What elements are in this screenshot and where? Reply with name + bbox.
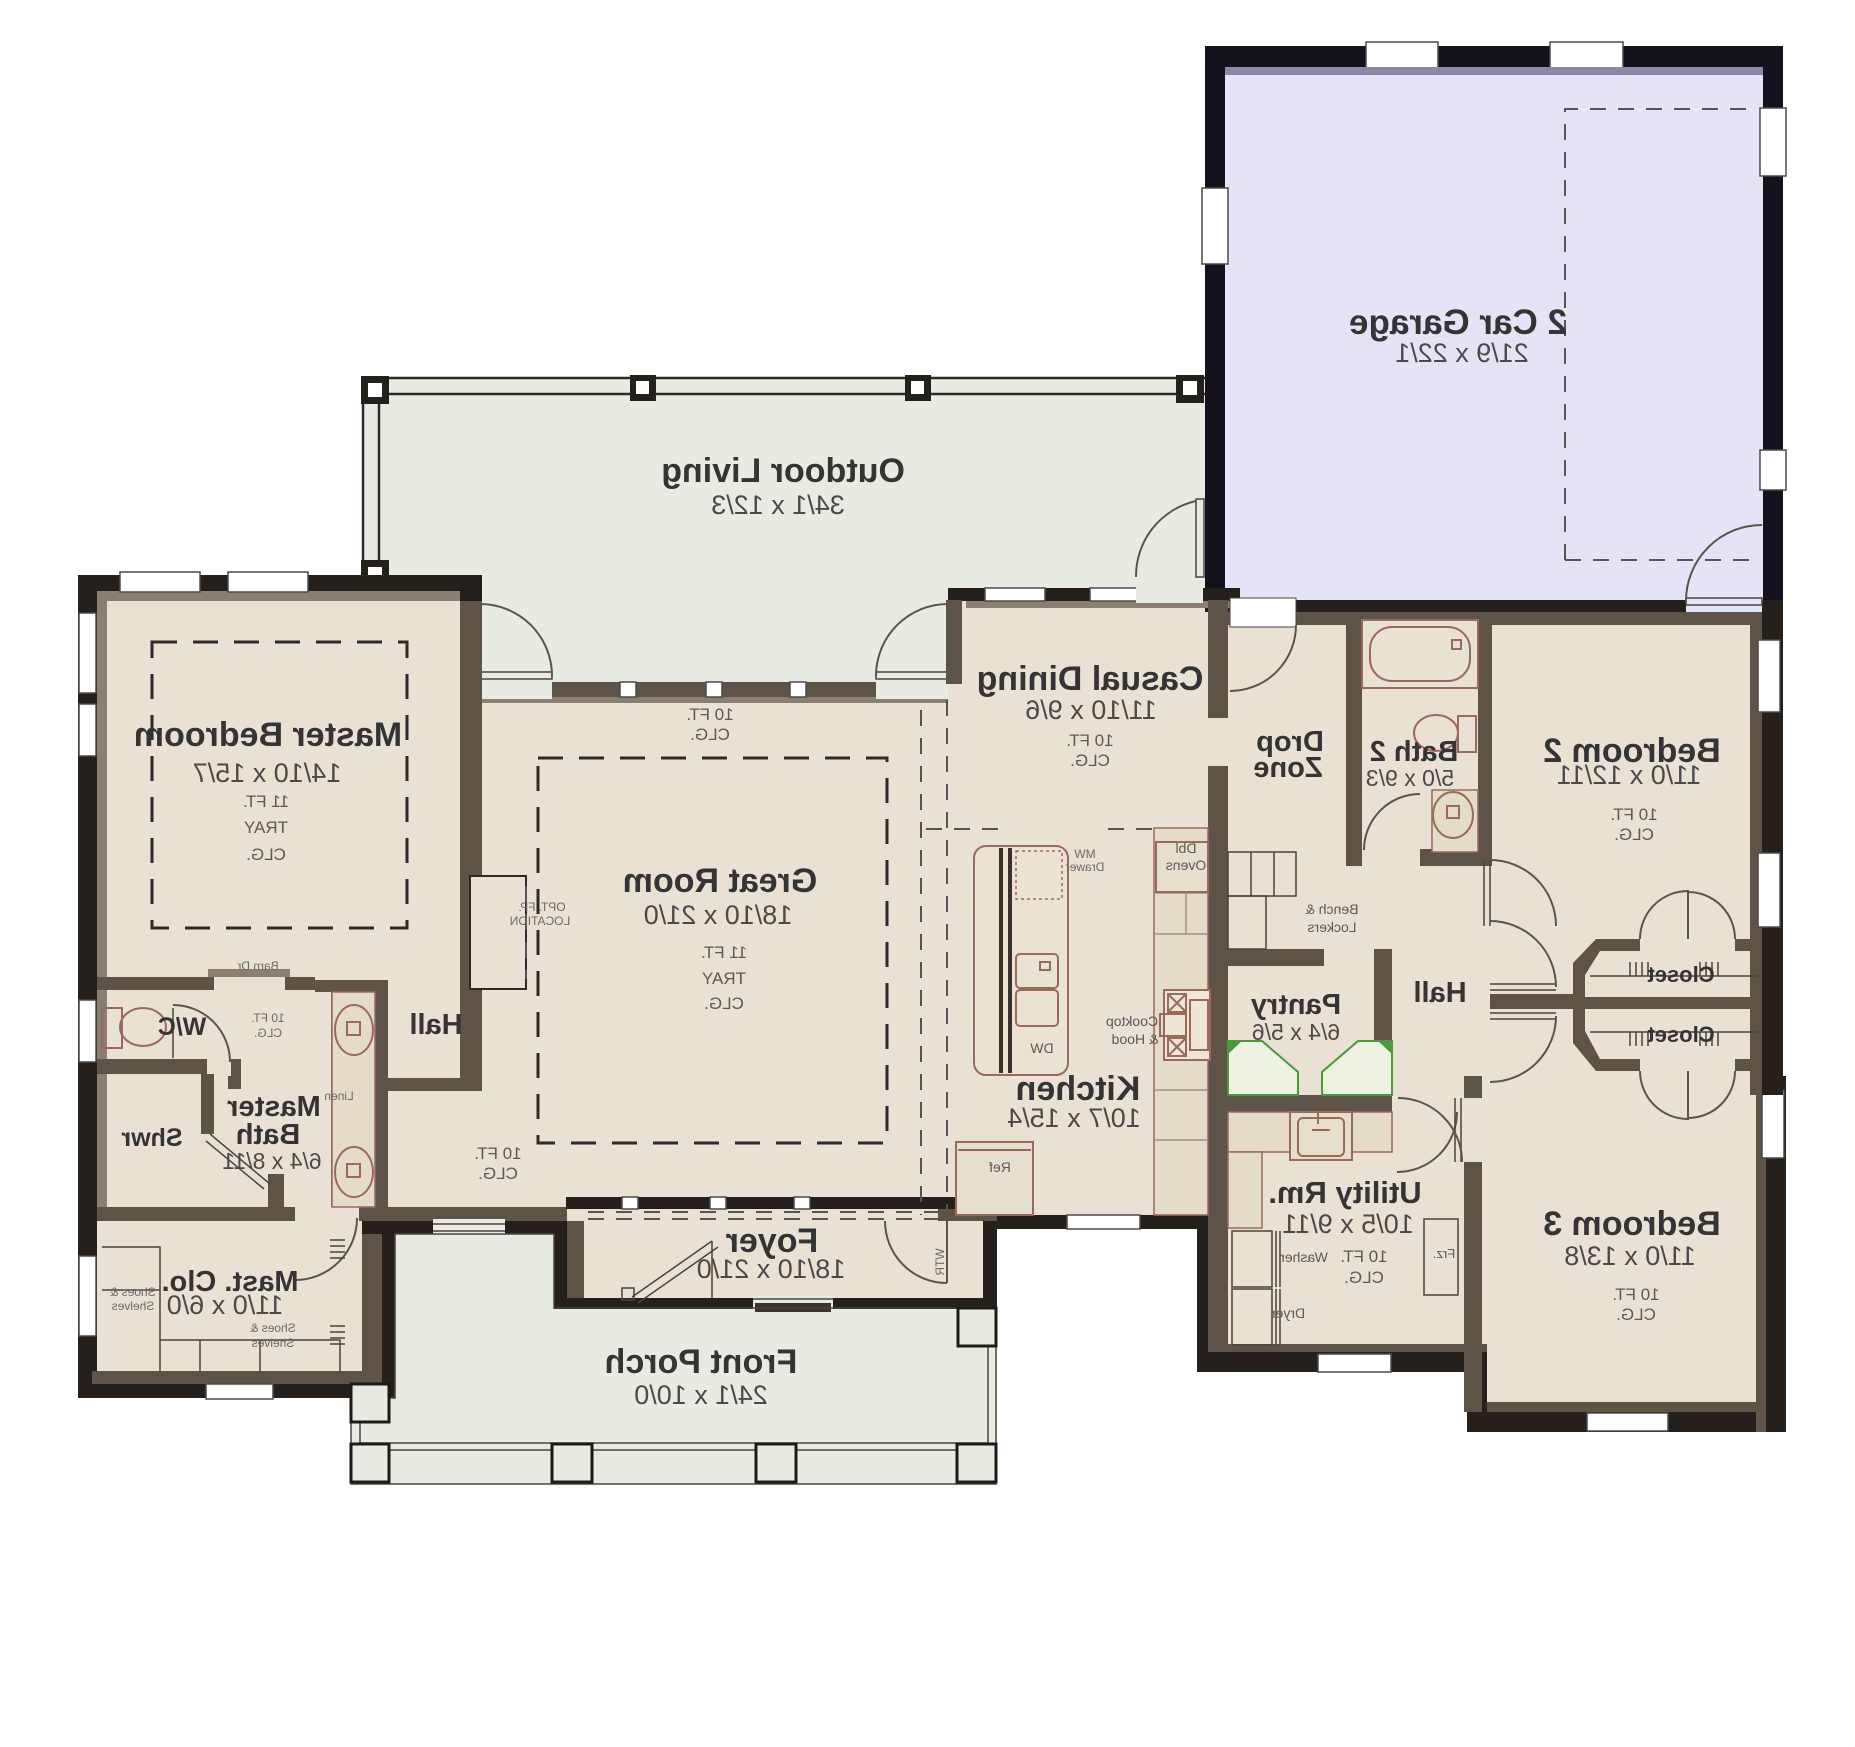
svg-text:11/0 x 13/8: 11/0 x 13/8: [1564, 1241, 1696, 1271]
svg-text:10/5 x 9/11: 10/5 x 9/11: [1282, 1209, 1414, 1239]
svg-text:Shelves: Shelves: [112, 1299, 155, 1313]
svg-text:2 Car Garage: 2 Car Garage: [1349, 303, 1567, 342]
svg-text:CLG.: CLG.: [246, 845, 286, 864]
svg-text:6/4 x 5/6: 6/4 x 5/6: [1252, 1019, 1340, 1045]
svg-text:Closet: Closet: [1647, 962, 1715, 987]
svg-text:W/C: W/C: [158, 1013, 207, 1041]
svg-text:Dryer: Dryer: [1271, 1305, 1306, 1321]
svg-text:21/9 x 22/1: 21/9 x 22/1: [1395, 338, 1529, 368]
svg-text:Shelves: Shelves: [252, 1336, 295, 1350]
svg-text:Bench &: Bench &: [1305, 901, 1359, 917]
svg-text:Closet: Closet: [1647, 1022, 1715, 1047]
svg-text:Cooktop: Cooktop: [1106, 1013, 1158, 1029]
svg-text:Shwr: Shwr: [121, 1124, 182, 1152]
svg-text:Frz.: Frz.: [1433, 1246, 1455, 1261]
svg-text:CLG.: CLG.: [704, 994, 744, 1013]
svg-text:11 FT.: 11 FT.: [701, 943, 747, 962]
svg-text:CLG.: CLG.: [254, 1026, 282, 1040]
svg-text:Lockers: Lockers: [1307, 919, 1356, 935]
svg-text:10/7 x 15/4: 10/7 x 15/4: [1007, 1103, 1141, 1133]
svg-text:DW: DW: [1030, 1040, 1054, 1056]
svg-text:Shoes &: Shoes &: [110, 1285, 155, 1299]
svg-text:10 FT.: 10 FT.: [1610, 805, 1657, 824]
svg-text:24/1 x 10/0: 24/1 x 10/0: [634, 1380, 768, 1410]
svg-text:Bath 2: Bath 2: [1370, 736, 1459, 768]
svg-text:Linen: Linen: [324, 1089, 353, 1103]
svg-text:Washer: Washer: [1280, 1249, 1328, 1265]
svg-text:CLG.: CLG.: [1614, 825, 1654, 844]
svg-text:11/0 x 12/11: 11/0 x 12/11: [1557, 760, 1702, 790]
svg-text:Barn Dr: Barn Dr: [237, 959, 278, 973]
svg-text:& Hood: & Hood: [1112, 1031, 1159, 1047]
svg-text:10 FT.: 10 FT.: [1066, 731, 1113, 750]
svg-text:10 FT.: 10 FT.: [1612, 1285, 1659, 1304]
svg-text:LOCATION: LOCATION: [510, 914, 570, 928]
svg-text:6/4 x 8/11: 6/4 x 8/11: [222, 1148, 321, 1174]
svg-text:11/10 x 9/6: 11/10 x 9/6: [1025, 695, 1157, 725]
svg-text:14/10 x 15/7: 14/10 x 15/7: [193, 758, 342, 788]
svg-text:Bath: Bath: [236, 1119, 300, 1151]
svg-text:OPT. FP.: OPT. FP.: [518, 900, 565, 914]
svg-text:10 FT.: 10 FT.: [474, 1144, 521, 1163]
svg-text:Shoes &: Shoes &: [250, 1321, 295, 1335]
svg-text:CLG.: CLG.: [1070, 751, 1110, 770]
svg-text:Pantry: Pantry: [1251, 989, 1341, 1021]
svg-text:18/10 x 21/0: 18/10 x 21/0: [697, 1254, 846, 1284]
svg-text:TRAY: TRAY: [702, 969, 746, 988]
svg-text:CLG.: CLG.: [478, 1164, 518, 1183]
svg-text:MW: MW: [1074, 847, 1096, 861]
svg-text:Hall: Hall: [1413, 977, 1466, 1009]
svg-text:TRAY: TRAY: [244, 818, 288, 837]
svg-text:Hall: Hall: [409, 1009, 462, 1041]
svg-text:10 FT.: 10 FT.: [251, 1011, 284, 1025]
svg-text:5/0 x 9/3: 5/0 x 9/3: [1366, 765, 1454, 791]
svg-text:Zone: Zone: [1253, 752, 1322, 784]
svg-text:Great Room: Great Room: [623, 862, 818, 900]
svg-text:Front Porch: Front Porch: [605, 1343, 798, 1381]
svg-text:Casual Dining: Casual Dining: [977, 660, 1204, 698]
svg-text:11 FT.: 11 FT.: [243, 792, 289, 811]
svg-text:Outdoor Living: Outdoor Living: [661, 452, 905, 490]
svg-text:18/10 x 21/0: 18/10 x 21/0: [644, 900, 793, 930]
svg-text:Utility Rm.: Utility Rm.: [1268, 1175, 1421, 1210]
svg-text:10 FT.: 10 FT.: [1340, 1247, 1387, 1266]
svg-text:Drawer: Drawer: [1066, 860, 1105, 874]
svg-text:11/0 x 6/0: 11/0 x 6/0: [167, 1290, 284, 1320]
svg-text:34/1 x 12/3: 34/1 x 12/3: [711, 490, 845, 520]
svg-text:10 FT.: 10 FT.: [686, 705, 733, 724]
svg-text:Master Bedroom: Master Bedroom: [134, 716, 402, 754]
svg-text:CLG.: CLG.: [1344, 1268, 1384, 1287]
svg-text:Bedroom 3: Bedroom 3: [1543, 1205, 1721, 1243]
svg-text:CLG.: CLG.: [1616, 1305, 1656, 1324]
svg-text:CLG.: CLG.: [690, 725, 730, 744]
svg-text:Ref: Ref: [989, 1159, 1011, 1175]
svg-text:Ovens: Ovens: [1166, 857, 1206, 873]
svg-text:WTR: WTR: [933, 1248, 947, 1276]
svg-text:Dbl: Dbl: [1175, 840, 1196, 856]
